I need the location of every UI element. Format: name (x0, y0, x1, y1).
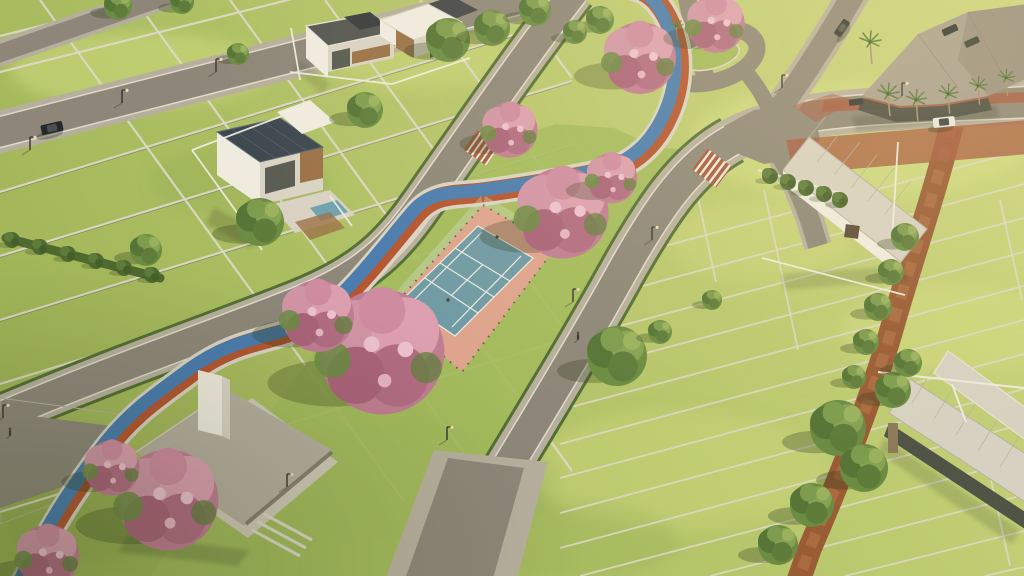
corner-shade (0, 0, 1024, 576)
aerial-development-render (0, 0, 1024, 576)
render-canvas (0, 0, 1024, 576)
